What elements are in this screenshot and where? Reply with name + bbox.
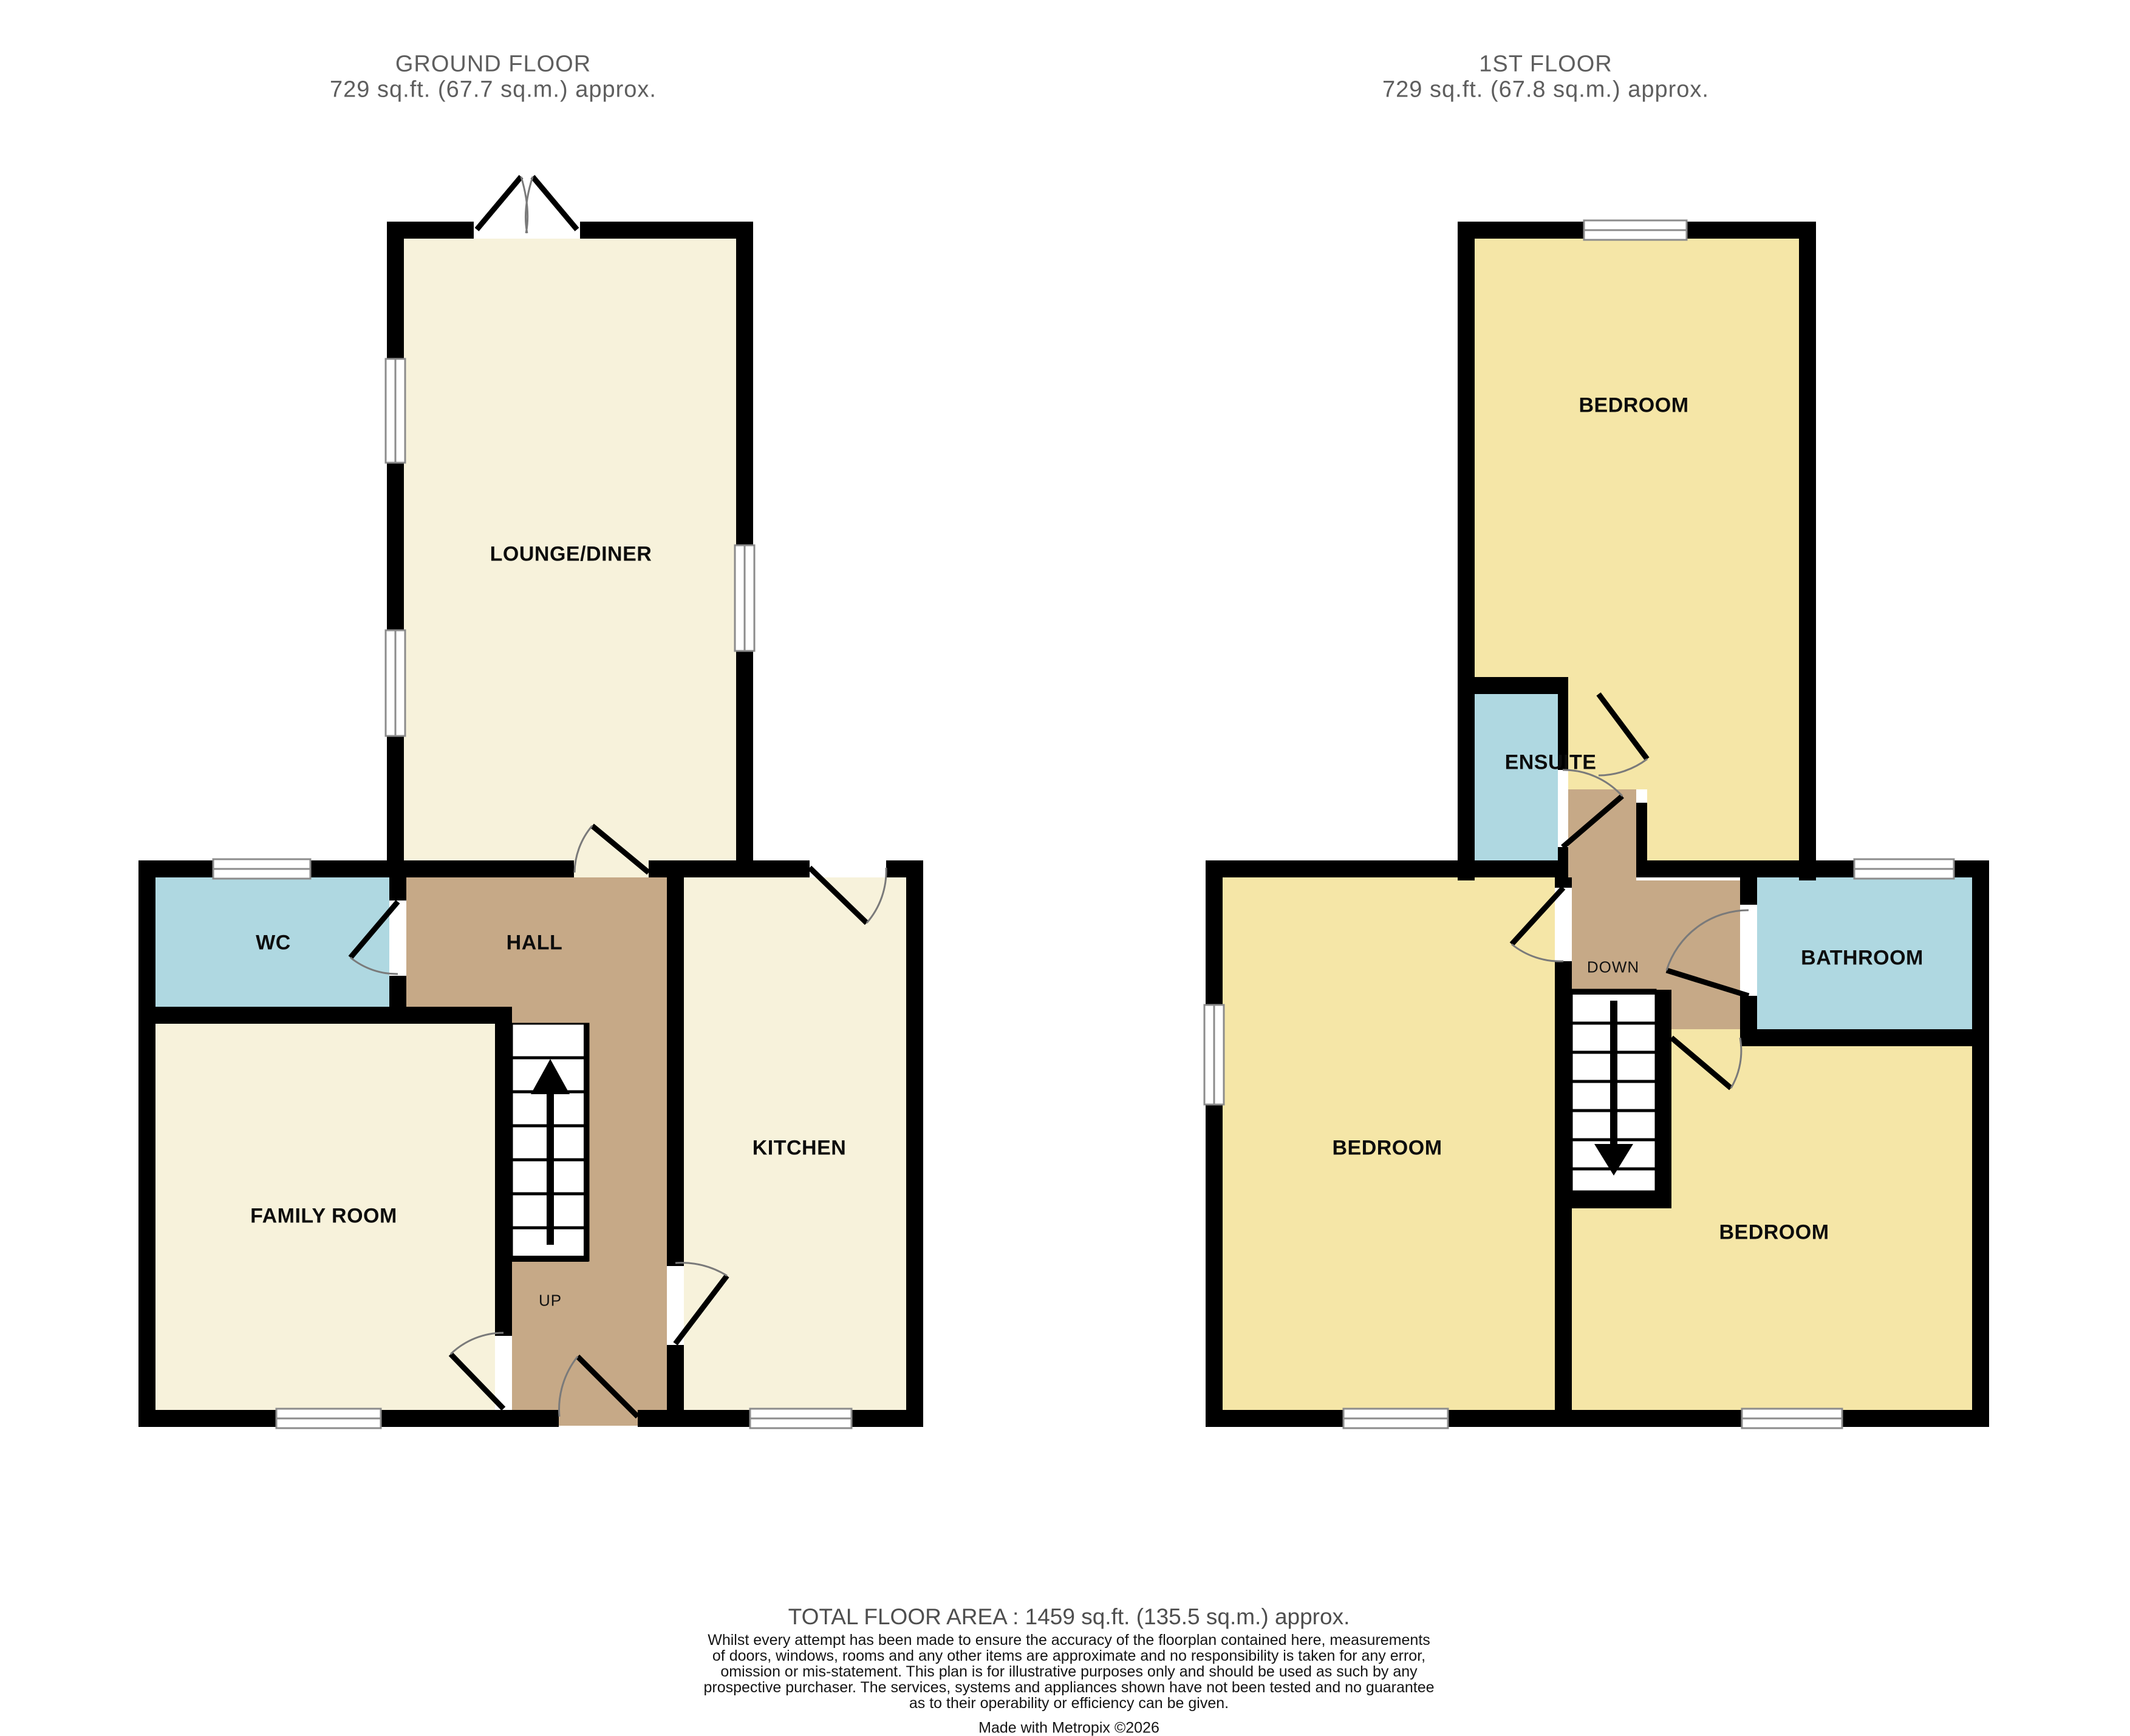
window — [386, 630, 405, 736]
label-hall: HALL — [507, 931, 563, 955]
disclaimer-line: omission or mis-statement. This plan is … — [703, 1664, 1434, 1680]
front-doorway-floor — [559, 1410, 638, 1426]
disclaimer-line: prospective purchaser. The services, sys… — [703, 1680, 1434, 1695]
first-floor-area: 729 sq.ft. (67.8 sq.m.) approx. — [1382, 77, 1709, 103]
label-stairs-up: UP — [539, 1292, 562, 1310]
window — [1204, 1005, 1224, 1105]
floorplan-drawing — [0, 0, 2130, 1736]
label-ensuite: ENSUITE — [1505, 751, 1597, 775]
label-family-room: FAMILY ROOM — [250, 1205, 397, 1228]
stairs-up — [512, 1024, 589, 1262]
ground-floor-area: 729 sq.ft. (67.7 sq.m.) approx. — [330, 77, 657, 103]
label-wc: WC — [256, 931, 291, 955]
window — [1343, 1409, 1448, 1428]
label-bedroom-top: BEDROOM — [1579, 394, 1688, 418]
label-bedroom-left: BEDROOM — [1332, 1137, 1442, 1160]
window — [386, 359, 405, 463]
stairs-down — [1572, 990, 1656, 1191]
label-stairs-down: DOWN — [1587, 958, 1639, 977]
floorplan-page: GROUND FLOOR 729 sq.ft. (67.7 sq.m.) app… — [0, 0, 2130, 1736]
label-kitchen: KITCHEN — [753, 1137, 847, 1160]
disclaimer-line: as to their operability or efficiency ca… — [703, 1695, 1434, 1711]
disclaimer-line: Whilst every attempt has been made to en… — [703, 1632, 1434, 1648]
disclaimer-line: of doors, windows, rooms and any other i… — [703, 1648, 1434, 1664]
room-ensuite — [1475, 694, 1558, 877]
window — [1742, 1409, 1842, 1428]
window — [213, 859, 310, 879]
total-floor-area: TOTAL FLOOR AREA : 1459 sq.ft. (135.5 sq… — [788, 1604, 1350, 1630]
first-floor-title: 1ST FLOOR — [1479, 52, 1612, 78]
label-lounge-diner: LOUNGE/DINER — [490, 543, 652, 567]
french-doors — [477, 177, 577, 233]
window — [750, 1409, 852, 1428]
label-bathroom: BATHROOM — [1801, 947, 1923, 970]
disclaimer-text: Whilst every attempt has been made to en… — [703, 1632, 1434, 1711]
ground-floor-title: GROUND FLOOR — [395, 52, 591, 78]
window — [1584, 220, 1687, 240]
label-bedroom-right: BEDROOM — [1719, 1221, 1829, 1245]
metropix-credit: Made with Metropix ©2026 — [978, 1720, 1159, 1736]
window — [1854, 859, 1954, 879]
ground-floor-plan — [138, 177, 923, 1428]
window — [735, 545, 754, 651]
window — [276, 1409, 381, 1428]
